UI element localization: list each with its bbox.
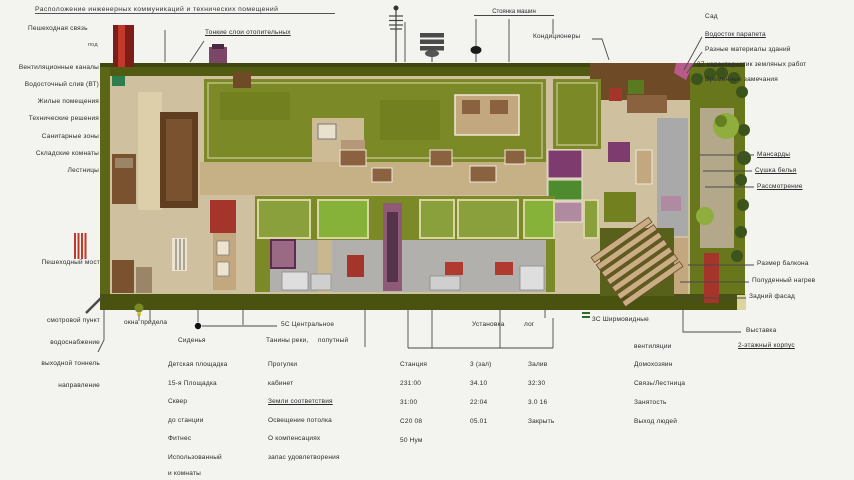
table-c3: 32:30 [528, 380, 545, 388]
table-c1: 31:00 [400, 399, 417, 407]
table-c1: 50 Нум [400, 437, 423, 445]
legend-b-item: О компенсациях [268, 435, 320, 443]
table-c2: 34.10 [470, 380, 487, 388]
table-c1: Станция [400, 361, 427, 369]
parking-label: Стоянка машин [474, 9, 554, 16]
laundry-label: Сушка белья [755, 167, 797, 175]
bridge-label: Пешеходный мост [18, 259, 100, 267]
table-c4: Выход людей [634, 418, 677, 426]
balcony-label: Размер балкона [757, 260, 809, 268]
table-c1: 231:00 [400, 380, 421, 388]
table-c1: С20 08 [400, 418, 422, 426]
left-label: Водосточный слив (ВТ) [0, 81, 101, 89]
table-c2: 3 (зал) [470, 361, 492, 369]
legend-a-item: Сквер [168, 398, 187, 406]
street-lamp-icon [471, 19, 482, 62]
bottom-left-label: водоснабжение [18, 339, 100, 347]
left-label: Вентиляционные каналы [0, 64, 101, 72]
review-label: Рассмотрение [757, 183, 803, 191]
exhibition-label: Выставка [746, 327, 776, 335]
bottom-left-label: выходной тоннель [18, 360, 100, 368]
legend-a-item: Детская площадка [168, 361, 227, 369]
noon-heat-label: Полуденный нагрев [752, 277, 815, 285]
rear-facade-label: Задний фасад [749, 293, 795, 301]
seats-header: Сиденья [178, 337, 206, 345]
plan-title: Расположение инженерных коммуникаций и т… [35, 6, 335, 14]
table-c2: 05.01 [470, 418, 487, 426]
legend-a-item: до станции [168, 417, 204, 425]
bottom-left-label: смотровой пункт [18, 317, 100, 325]
left-label: Складские комнаты [0, 150, 101, 158]
antenna-icon [389, 6, 405, 63]
legend-b-item: Освещение потолка [268, 417, 332, 425]
left-label: Лестницы [0, 167, 101, 175]
temp-notes-label: Временные замечания [705, 76, 778, 84]
bottom-left-label: направление [18, 382, 100, 390]
table-c3: Закрыть [528, 418, 554, 426]
legend-b-item: кабинет [268, 380, 293, 388]
marker-3c-label: 3С Ширмовидные [592, 316, 649, 324]
okna-label: окна придела [124, 319, 167, 327]
legend-b-item: запас удовлетворения [268, 454, 340, 462]
table-c4: Домохозяин [634, 361, 673, 369]
left-label: Технические решения [0, 115, 101, 123]
pod-label: под [88, 42, 98, 49]
poputny-header: попутный [318, 337, 348, 345]
legend-a-item: Фитнес [168, 435, 191, 443]
table-c4-header: вентиляции [634, 343, 672, 351]
pedestrian-label: Пешеходная связь [28, 25, 88, 33]
attic-label: Мансарды [757, 151, 790, 159]
ac-label: Кондиционеры [533, 33, 580, 41]
ustanovka-label: Установка [472, 321, 505, 329]
ac-unit-icon [420, 33, 444, 62]
garden-label: Сад [705, 13, 718, 21]
legend-b-item: Земли соответствия [268, 398, 333, 406]
earthworks-label: 37 характеристик земляных работ [697, 61, 806, 69]
parapet-drain-label: Водосток парапета [705, 31, 766, 39]
table-c4: Связь/Лестница [634, 380, 685, 388]
green-roof-areas [204, 44, 644, 162]
tanin-header: Танины реки, [266, 337, 309, 345]
table-c2: 22:04 [470, 399, 487, 407]
red-grate-icon [74, 233, 87, 259]
legend-a-item: и комнаты [168, 470, 201, 478]
table-c3: Залив [528, 361, 547, 369]
heating-label: Тонкие слои отопительных [205, 29, 291, 37]
table-c3: 3.0 16 [528, 399, 547, 407]
left-label: Жилые помещения [0, 98, 101, 106]
floor-plan-drawing [0, 0, 854, 480]
table-c4: Занятость [634, 399, 667, 407]
left-label: Санитарные зоны [0, 133, 101, 141]
two-storey-label: 2-этажный корпус [738, 342, 795, 350]
site-plan-page: { "palette": { "background": "#f3f3f0", … [0, 0, 854, 480]
legend-a-item: Использованный [168, 454, 222, 462]
legend-b-item: Прогулки [268, 361, 297, 369]
legend-a-item: 15-я Площадка [168, 380, 217, 388]
bottom-room-band [255, 196, 598, 292]
marker-5c-label: 5С Центральное [281, 321, 334, 329]
log-label: лог [524, 321, 534, 329]
materials-label: Разные материалы зданий [705, 46, 791, 54]
